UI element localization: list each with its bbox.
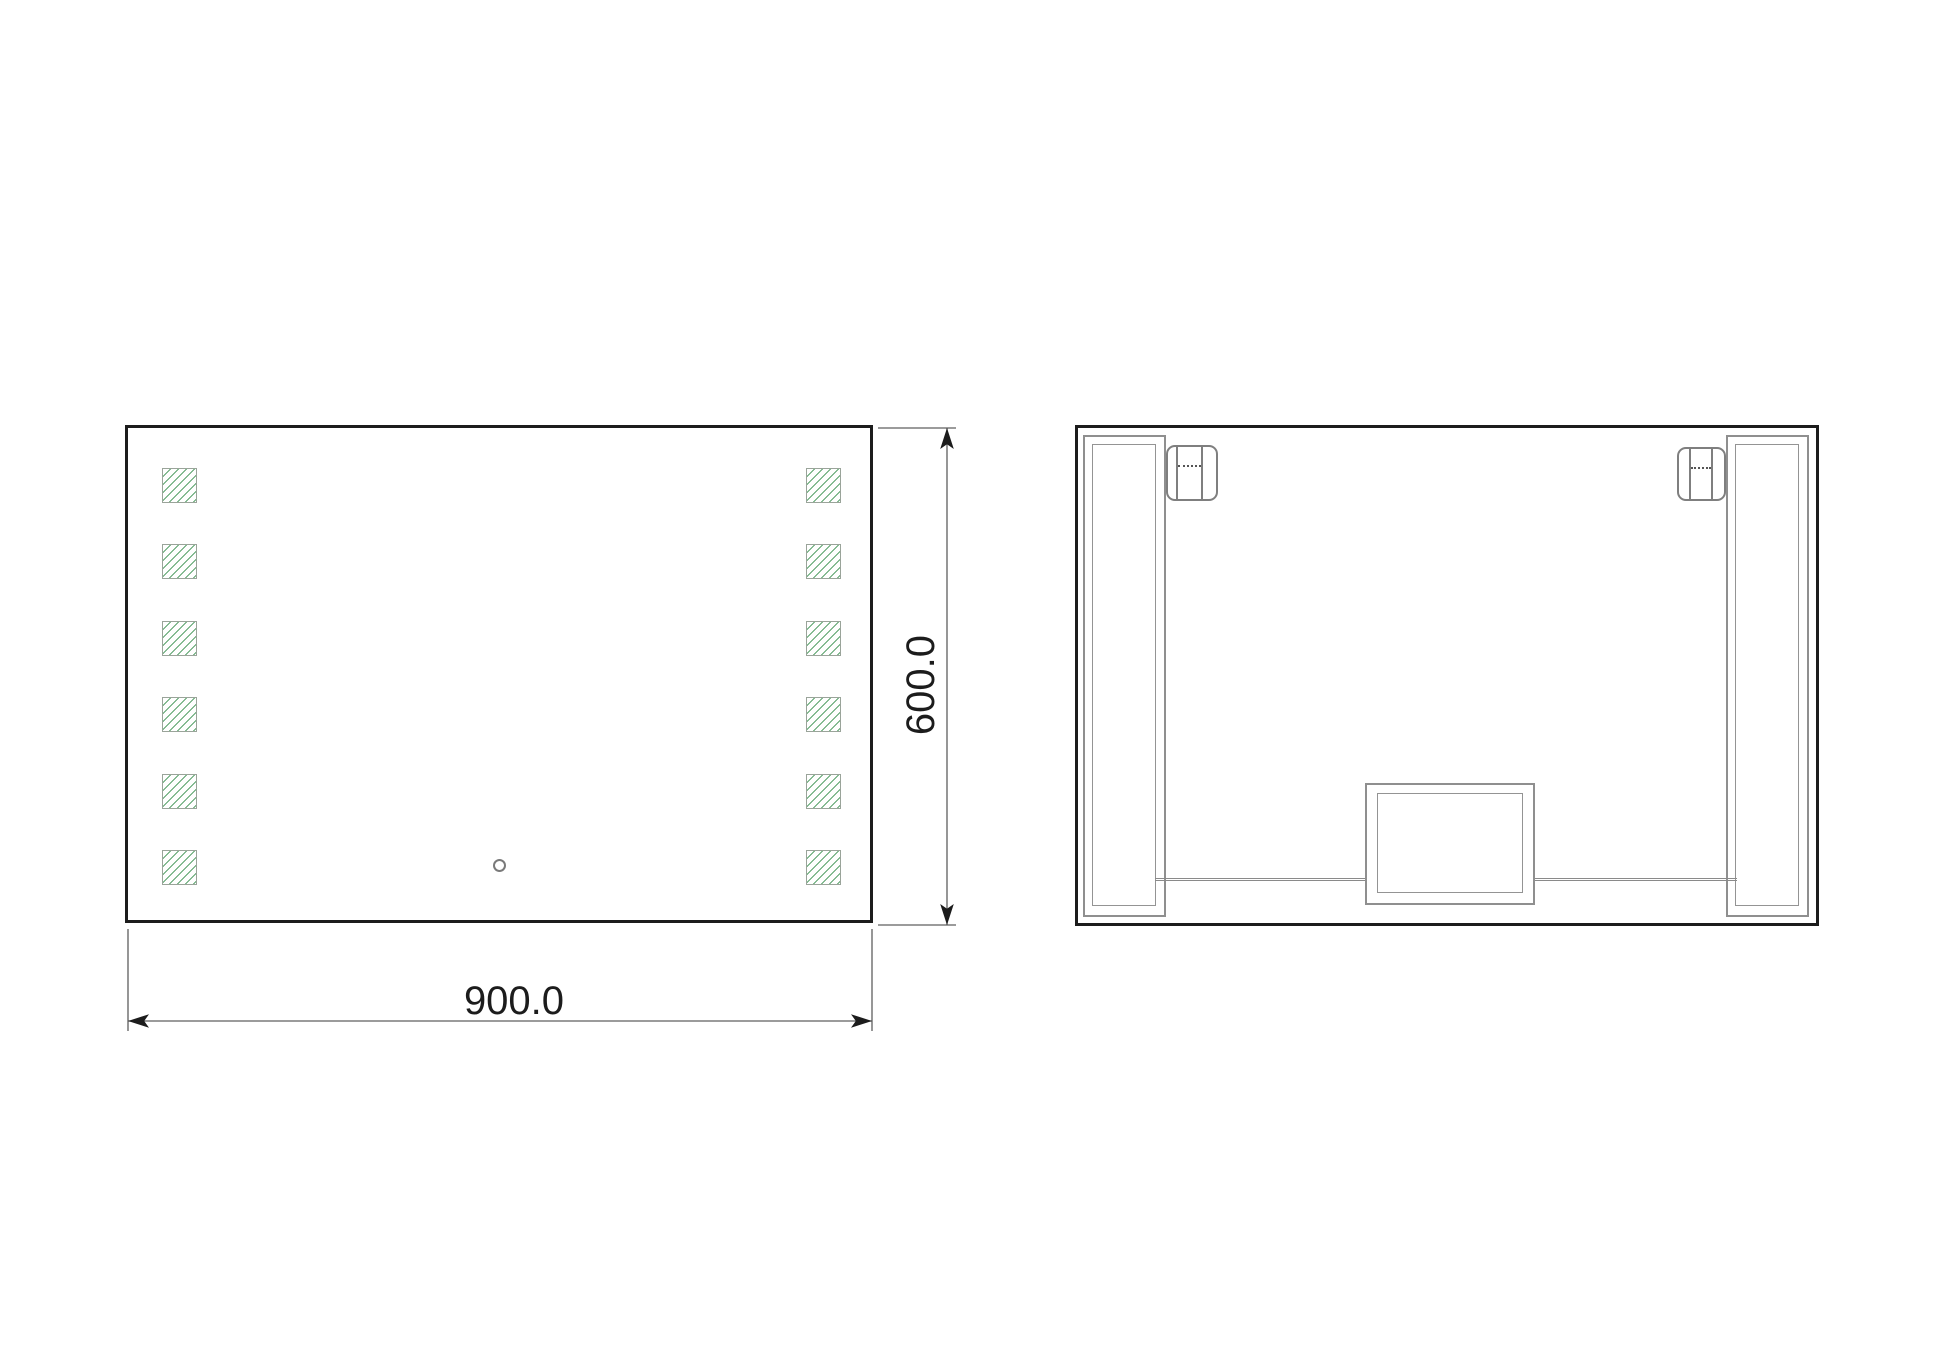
spring-clip-left xyxy=(1166,445,1218,501)
width-dimension-label: 900.0 xyxy=(414,980,614,1022)
spring-clip-bar xyxy=(1711,449,1713,499)
spring-clip-bar xyxy=(1201,447,1203,499)
hanging-rail-right xyxy=(1726,435,1809,917)
spring-coil-line xyxy=(1691,467,1711,469)
hanging-rail-left-inner xyxy=(1092,444,1156,906)
technical-drawing-canvas: 900.0 600.0 xyxy=(0,0,1946,1353)
spring-clip-right xyxy=(1677,447,1726,501)
hanging-rail-right-inner xyxy=(1735,444,1799,906)
junction-box xyxy=(1365,783,1535,905)
power-wire-left xyxy=(1155,878,1367,881)
junction-box-inner xyxy=(1377,793,1523,893)
spring-clip-bar xyxy=(1176,447,1178,499)
power-wire-right xyxy=(1533,878,1737,881)
spring-coil-line xyxy=(1178,465,1201,467)
hanging-rail-left xyxy=(1083,435,1166,917)
height-dimension-label: 600.0 xyxy=(900,585,942,785)
back-view-outline xyxy=(1075,425,1819,926)
spring-clip-bar xyxy=(1689,449,1691,499)
